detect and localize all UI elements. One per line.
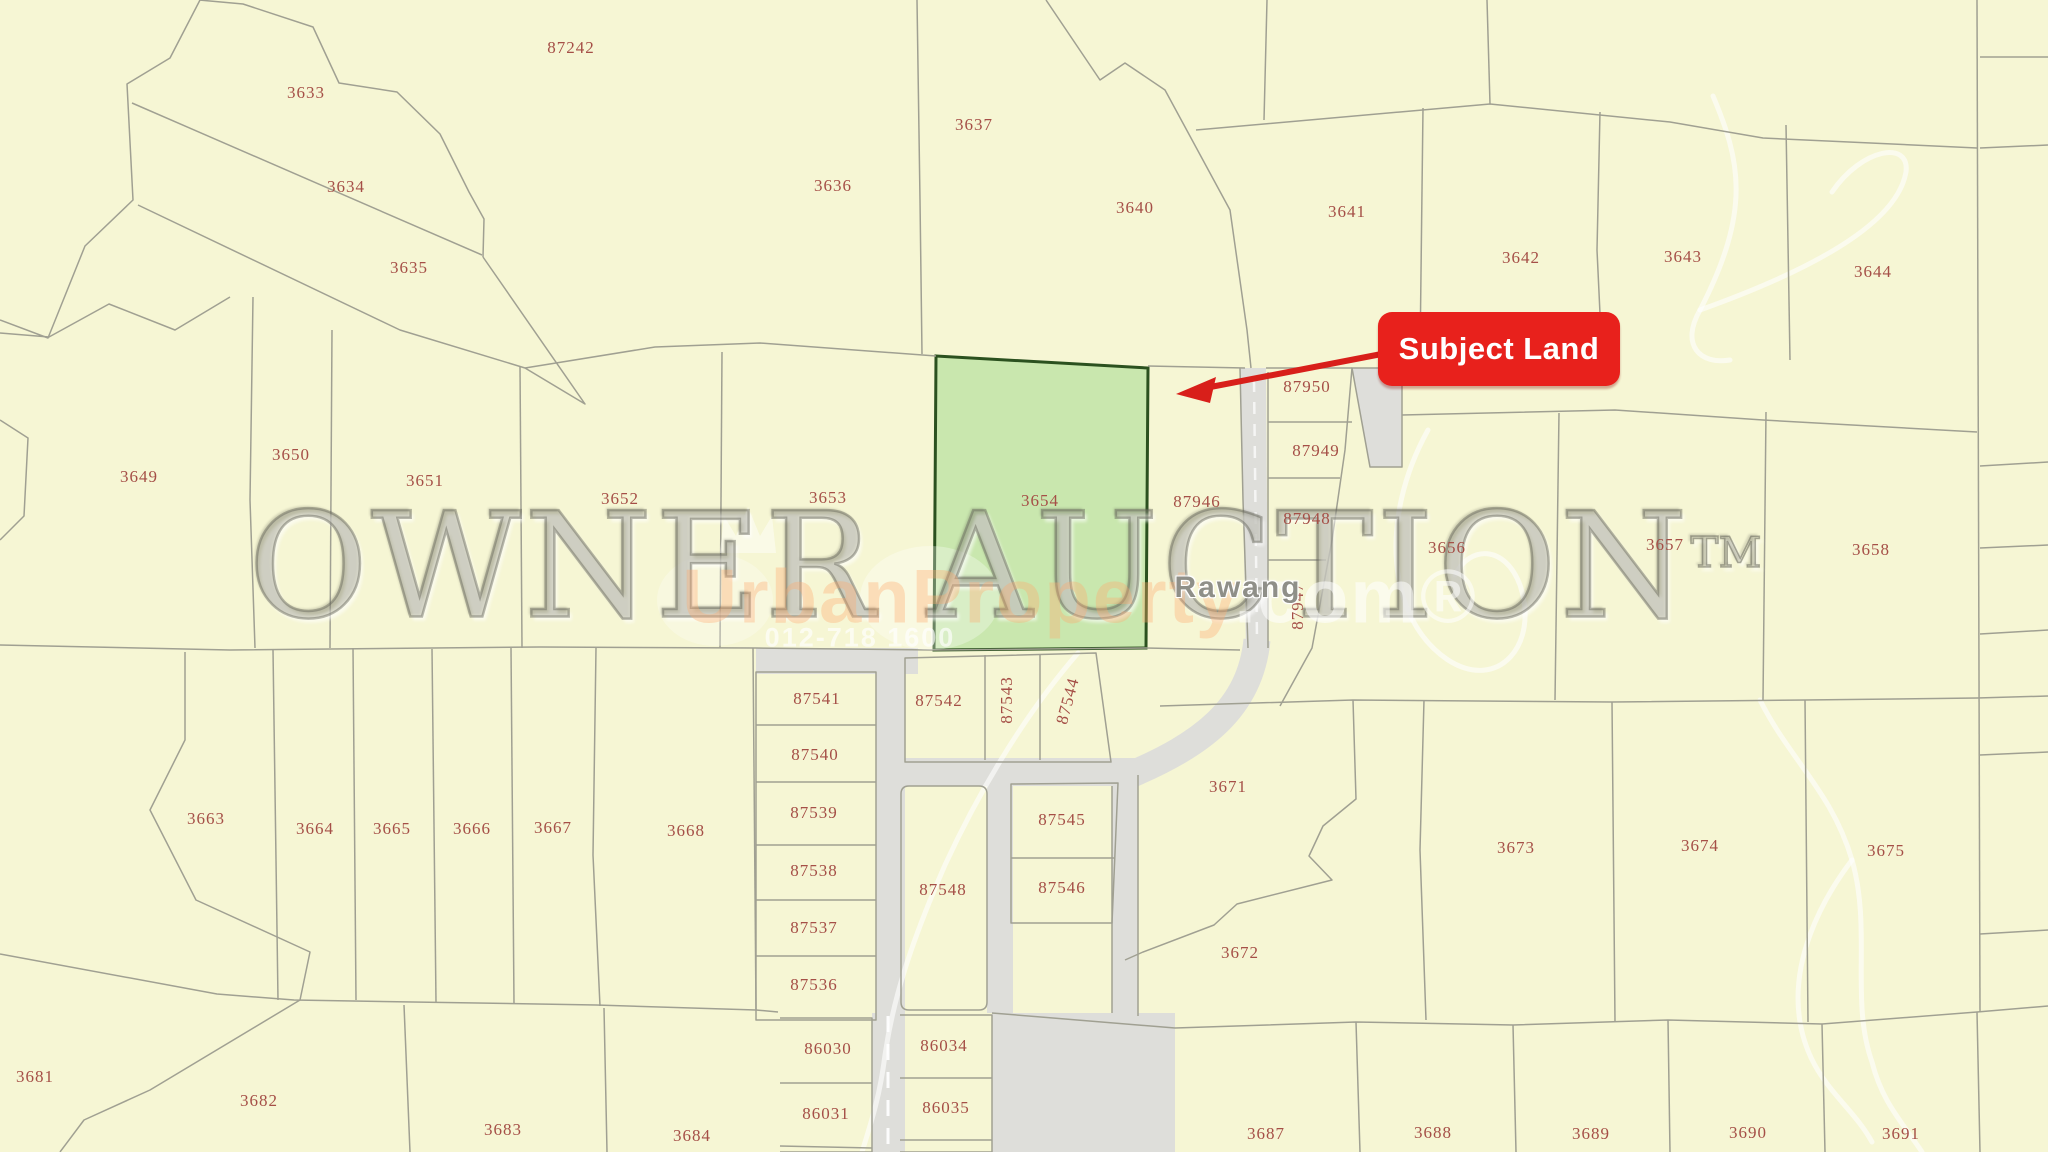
lot-label-3687: 3687 — [1247, 1124, 1285, 1144]
lot-label-87536: 87536 — [790, 975, 838, 995]
watermark-phone: 012-718 1600 — [765, 623, 956, 654]
lot-label-87946: 87946 — [1173, 492, 1221, 512]
subject-land-badge-label: Subject Land — [1399, 331, 1600, 367]
subject-land-badge[interactable]: Subject Land — [1378, 312, 1620, 386]
place-label-rawang: Rawang — [1174, 571, 1301, 605]
lot-label-3641: 3641 — [1328, 202, 1366, 222]
lot-label-86034: 86034 — [920, 1036, 968, 1056]
lot-label-3663: 3663 — [187, 809, 225, 829]
cadastral-map: OWNER AUCTIONTM UrbanProperty.com® 012-7… — [0, 0, 2048, 1152]
lot-label-3657: 3657 — [1646, 535, 1684, 555]
lot-label-3636: 3636 — [814, 176, 852, 196]
lot-label-87540: 87540 — [791, 745, 839, 765]
lot-label-87548: 87548 — [919, 880, 967, 900]
lot-label-3691: 3691 — [1882, 1124, 1920, 1144]
lot-label-87538: 87538 — [790, 861, 838, 881]
lot-label-86035: 86035 — [922, 1098, 970, 1118]
lot-label-87545: 87545 — [1038, 810, 1086, 830]
lot-label-3672: 3672 — [1221, 943, 1259, 963]
trademark-symbol: TM — [1691, 528, 1762, 577]
lot-label-87948: 87948 — [1283, 509, 1331, 529]
lot-label-3683: 3683 — [484, 1120, 522, 1140]
lot-label-3664: 3664 — [296, 819, 334, 839]
lot-label-3656: 3656 — [1428, 538, 1466, 558]
lot-label-3673: 3673 — [1497, 838, 1535, 858]
lot-label-3684: 3684 — [673, 1126, 711, 1146]
lot-label-3667: 3667 — [534, 818, 572, 838]
lot-label-87542: 87542 — [915, 691, 963, 711]
lot-label-3681: 3681 — [16, 1067, 54, 1087]
lot-label-3644: 3644 — [1854, 262, 1892, 282]
lot-label-87537: 87537 — [790, 918, 838, 938]
lot-label-3633: 3633 — [287, 83, 325, 103]
road-curve — [1130, 640, 1257, 775]
lot-label-3650: 3650 — [272, 445, 310, 465]
lot-label-3665: 3665 — [373, 819, 411, 839]
lot-label-87541: 87541 — [793, 689, 841, 709]
lot-label-3682: 3682 — [240, 1091, 278, 1111]
lot-label-86031: 86031 — [802, 1104, 850, 1124]
lot-label-3652: 3652 — [601, 489, 639, 509]
lot-label-3668: 3668 — [667, 821, 705, 841]
lot-label-3653: 3653 — [809, 488, 847, 508]
lot-label-3649: 3649 — [120, 467, 158, 487]
lot-label-3689: 3689 — [1572, 1124, 1610, 1144]
lot-label-3634: 3634 — [327, 177, 365, 197]
lot-label-3643: 3643 — [1664, 247, 1702, 267]
lot-label-87950: 87950 — [1283, 377, 1331, 397]
lot-label-3675: 3675 — [1867, 841, 1905, 861]
lot-label-87539: 87539 — [790, 803, 838, 823]
lot-label-3654: 3654 — [1021, 491, 1059, 511]
lot-label-87546: 87546 — [1038, 878, 1086, 898]
lot-label-3658: 3658 — [1852, 540, 1890, 560]
lot-label-87543: 87543 — [997, 676, 1017, 724]
lot-label-3637: 3637 — [955, 115, 993, 135]
lot-label-87949: 87949 — [1292, 441, 1340, 461]
lot-label-3688: 3688 — [1414, 1123, 1452, 1143]
lot-label-3635: 3635 — [390, 258, 428, 278]
lot-label-3640: 3640 — [1116, 198, 1154, 218]
lot-label-3690: 3690 — [1729, 1123, 1767, 1143]
lot-label-3666: 3666 — [453, 819, 491, 839]
lot-label-3642: 3642 — [1502, 248, 1540, 268]
lot-label-87242: 87242 — [547, 38, 595, 58]
lot-label-3674: 3674 — [1681, 836, 1719, 856]
lot-label-3671: 3671 — [1209, 777, 1247, 797]
lot-label-3651: 3651 — [406, 471, 444, 491]
lot-label-86030: 86030 — [804, 1039, 852, 1059]
